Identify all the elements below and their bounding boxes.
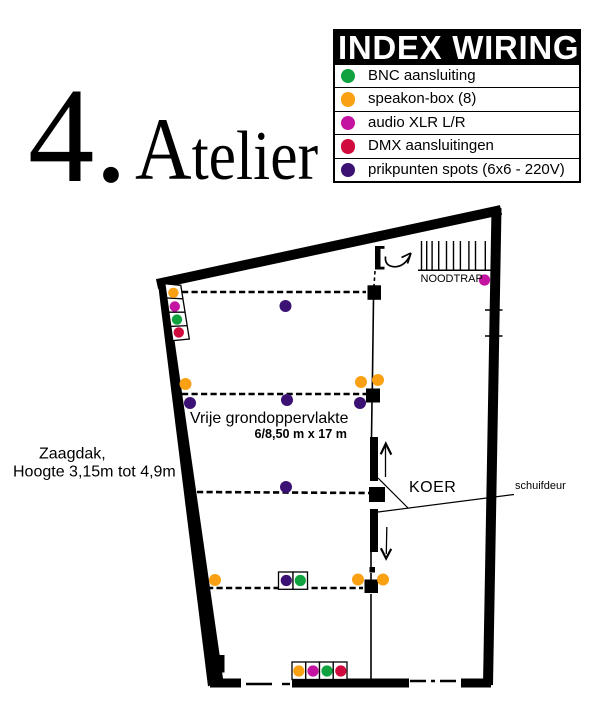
svg-text:KOER: KOER	[409, 479, 456, 496]
svg-text:6/8,50 m x 17 m: 6/8,50 m x 17 m	[255, 427, 347, 441]
svg-text:schuifdeur: schuifdeur	[515, 480, 566, 492]
svg-text:Hoogte 3,15m tot 4,9m: Hoogte 3,15m tot 4,9m	[13, 464, 176, 481]
svg-text:NOODTRAP: NOODTRAP	[421, 273, 483, 285]
svg-text:Vrije grondoppervlakte: Vrije grondoppervlakte	[190, 410, 349, 427]
svg-text:Zaagdak,: Zaagdak,	[39, 446, 106, 463]
